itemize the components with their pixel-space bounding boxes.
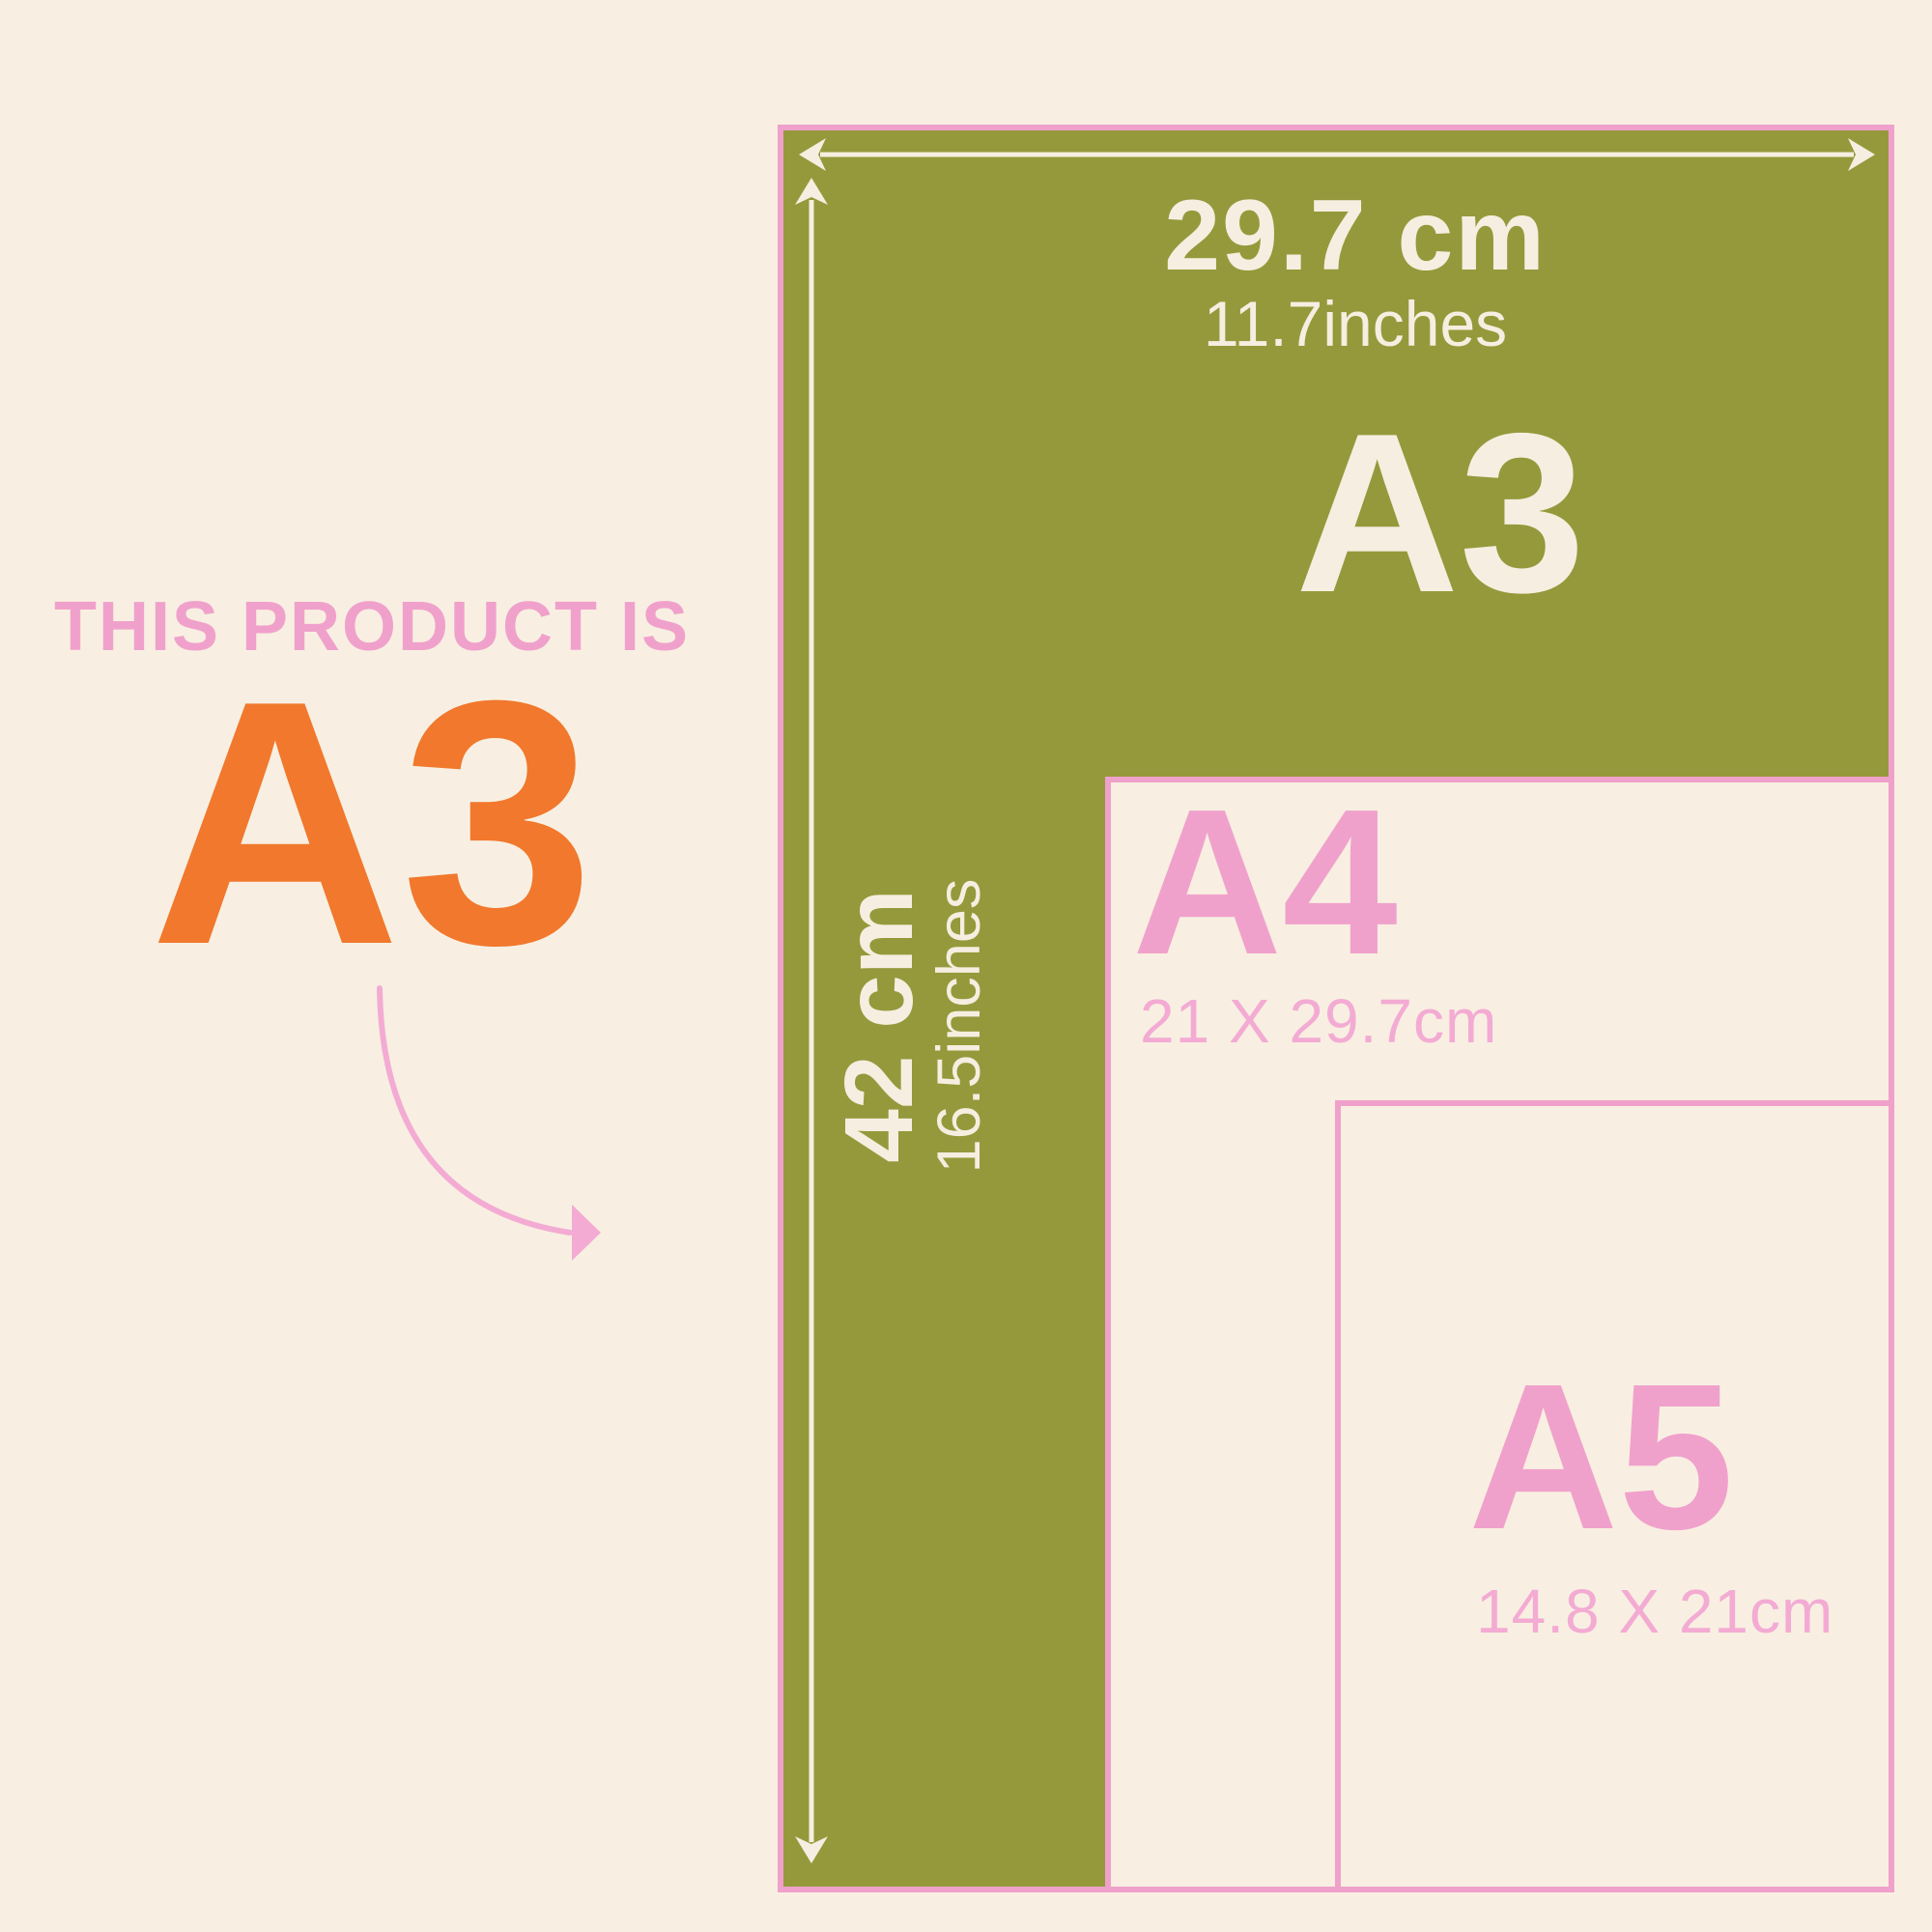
height-measure-arrow — [795, 178, 828, 1863]
sheet-a3: 29.7 cm 11.7inches A3 42 cm 16.5inches A… — [778, 125, 1894, 1892]
height-measure-value: 42 cm — [831, 879, 927, 1174]
curved-pointer-arrow-icon — [372, 980, 613, 1270]
width-measure-inches: 11.7inches — [822, 287, 1889, 360]
sheet-a3-label: A3 — [1189, 399, 1691, 626]
width-measure-arrow — [799, 138, 1875, 171]
paper-size-diagram: THIS PRODUCT IS A3 29.7 cm 11.7inches A3 — [0, 0, 1932, 1932]
sheet-a4-label: A4 — [1132, 778, 1398, 985]
sheet-a5: A5 14.8 X 21cm — [1335, 1100, 1889, 1887]
height-measure-inches: 16.5inches — [927, 879, 991, 1174]
width-measure-value: 29.7 cm — [822, 179, 1889, 294]
sheet-a4-dimensions: 21 X 29.7cm — [1140, 985, 1497, 1057]
callout-product-size: A3 — [53, 649, 691, 997]
sheet-a5-label: A5 — [1468, 1352, 1734, 1560]
sheet-a5-dimensions: 14.8 X 21cm — [1476, 1576, 1833, 1647]
height-measure-label: 42 cm 16.5inches — [831, 879, 991, 1174]
